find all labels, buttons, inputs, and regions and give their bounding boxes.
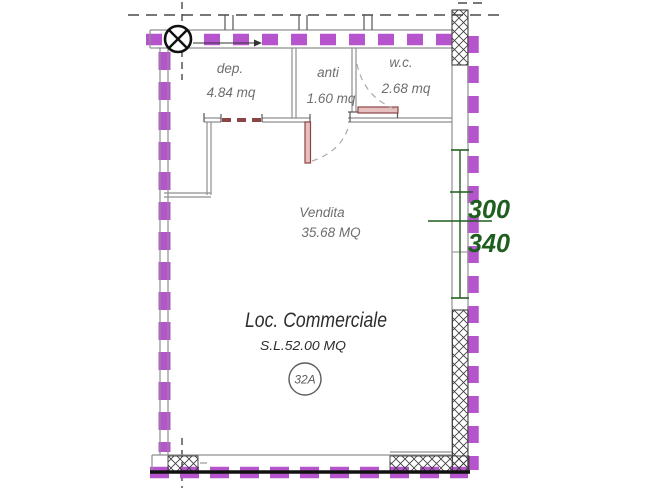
room-area-anti: 1.60 mq (307, 91, 356, 106)
room-name-anti: anti (317, 65, 340, 80)
survey-point-icon (165, 26, 191, 52)
dimension-value-top: 300 (468, 194, 511, 224)
anti-door-swing-arc (312, 125, 349, 161)
room-name-dep: dep. (217, 61, 243, 76)
unit-number: 32A (294, 373, 315, 387)
floorplan-page: 300 340 dep. 4.84 mq anti 1.60 mq w.c. 2… (0, 0, 648, 492)
room-area-dep: 4.84 mq (207, 85, 256, 100)
unit-subtitle: S.L.52.00 MQ (260, 338, 346, 353)
room-area-vendita: 35.68 MQ (301, 225, 361, 240)
dimension-annotation (428, 150, 492, 298)
direction-arrow-icon (193, 40, 262, 47)
room-area-wc: 2.68 mq (381, 81, 431, 96)
floorplan-drawing: 300 340 dep. 4.84 mq anti 1.60 mq w.c. 2… (0, 0, 648, 492)
room-name-vendita: Vendita (299, 205, 345, 220)
unit-number-badge: 32A (289, 363, 321, 395)
anti-door-leaf (305, 122, 311, 163)
dimension-value-bottom: 340 (468, 228, 511, 258)
unit-title: Loc. Commerciale (245, 308, 387, 332)
doors (222, 64, 398, 163)
walls (150, 10, 468, 471)
room-name-wc: w.c. (389, 55, 412, 70)
